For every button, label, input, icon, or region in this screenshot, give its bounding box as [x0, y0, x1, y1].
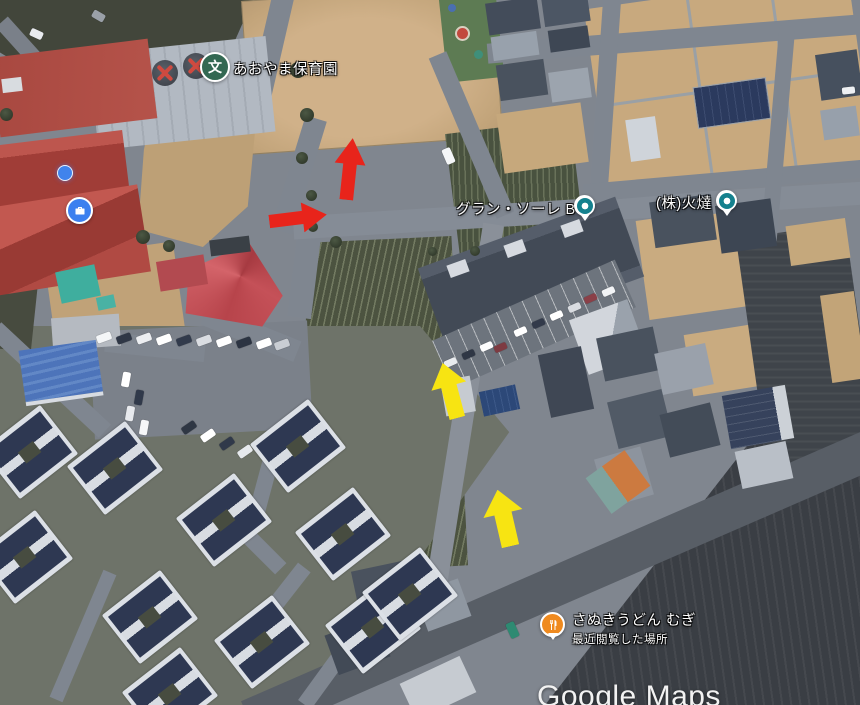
red-arrow-up	[330, 137, 367, 202]
label-restaurant-subtext: 最近閲覧した場所	[572, 631, 668, 647]
yellow-arrow-upper	[425, 358, 475, 422]
map-annotations: 文 あおやま保育園 グラン・ソーレ B (株)火燵 さぬきうどん むぎ 最近閲覧…	[0, 0, 860, 705]
label-apartment-b[interactable]: グラン・ソーレ B	[456, 198, 576, 219]
google-maps-watermark: Google Maps	[537, 680, 721, 705]
label-company[interactable]: (株)火燵	[656, 192, 712, 213]
label-restaurant[interactable]: さぬきうどん むぎ	[572, 609, 696, 630]
school-icon[interactable]: 文	[200, 52, 230, 82]
work-marker[interactable]	[66, 197, 93, 224]
restaurant-pin-icon[interactable]	[540, 612, 565, 637]
fork-knife-icon	[547, 619, 559, 631]
yellow-arrow-lower	[478, 485, 530, 551]
place-pin-icon[interactable]	[716, 190, 737, 211]
place-pin-icon[interactable]	[574, 195, 595, 216]
label-nursery[interactable]: あおやま保育園	[233, 58, 338, 79]
satellite-map[interactable]: 文 あおやま保育園 グラン・ソーレ B (株)火燵 さぬきうどん むぎ 最近閲覧…	[0, 0, 860, 705]
blue-dot-marker[interactable]	[57, 165, 73, 181]
school-glyph: 文	[208, 57, 222, 77]
briefcase-icon	[74, 205, 86, 217]
red-arrow-right	[267, 200, 328, 237]
